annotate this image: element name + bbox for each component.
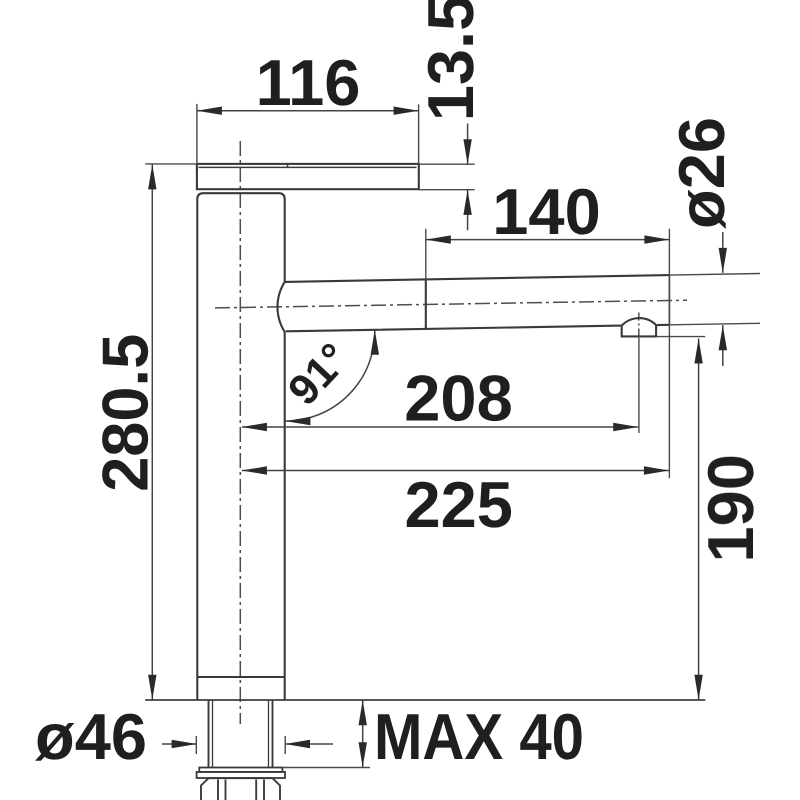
svg-text:140: 140 xyxy=(492,175,600,248)
svg-text:208: 208 xyxy=(404,362,512,435)
svg-text:116: 116 xyxy=(256,46,361,119)
svg-text:MAX 40: MAX 40 xyxy=(374,700,584,773)
svg-text:13.5: 13.5 xyxy=(414,0,487,121)
svg-text:225: 225 xyxy=(404,468,512,541)
svg-text:190: 190 xyxy=(694,454,767,562)
svg-text:280.5: 280.5 xyxy=(88,334,161,492)
svg-text:ø26: ø26 xyxy=(665,117,738,229)
svg-text:ø46: ø46 xyxy=(35,700,147,773)
